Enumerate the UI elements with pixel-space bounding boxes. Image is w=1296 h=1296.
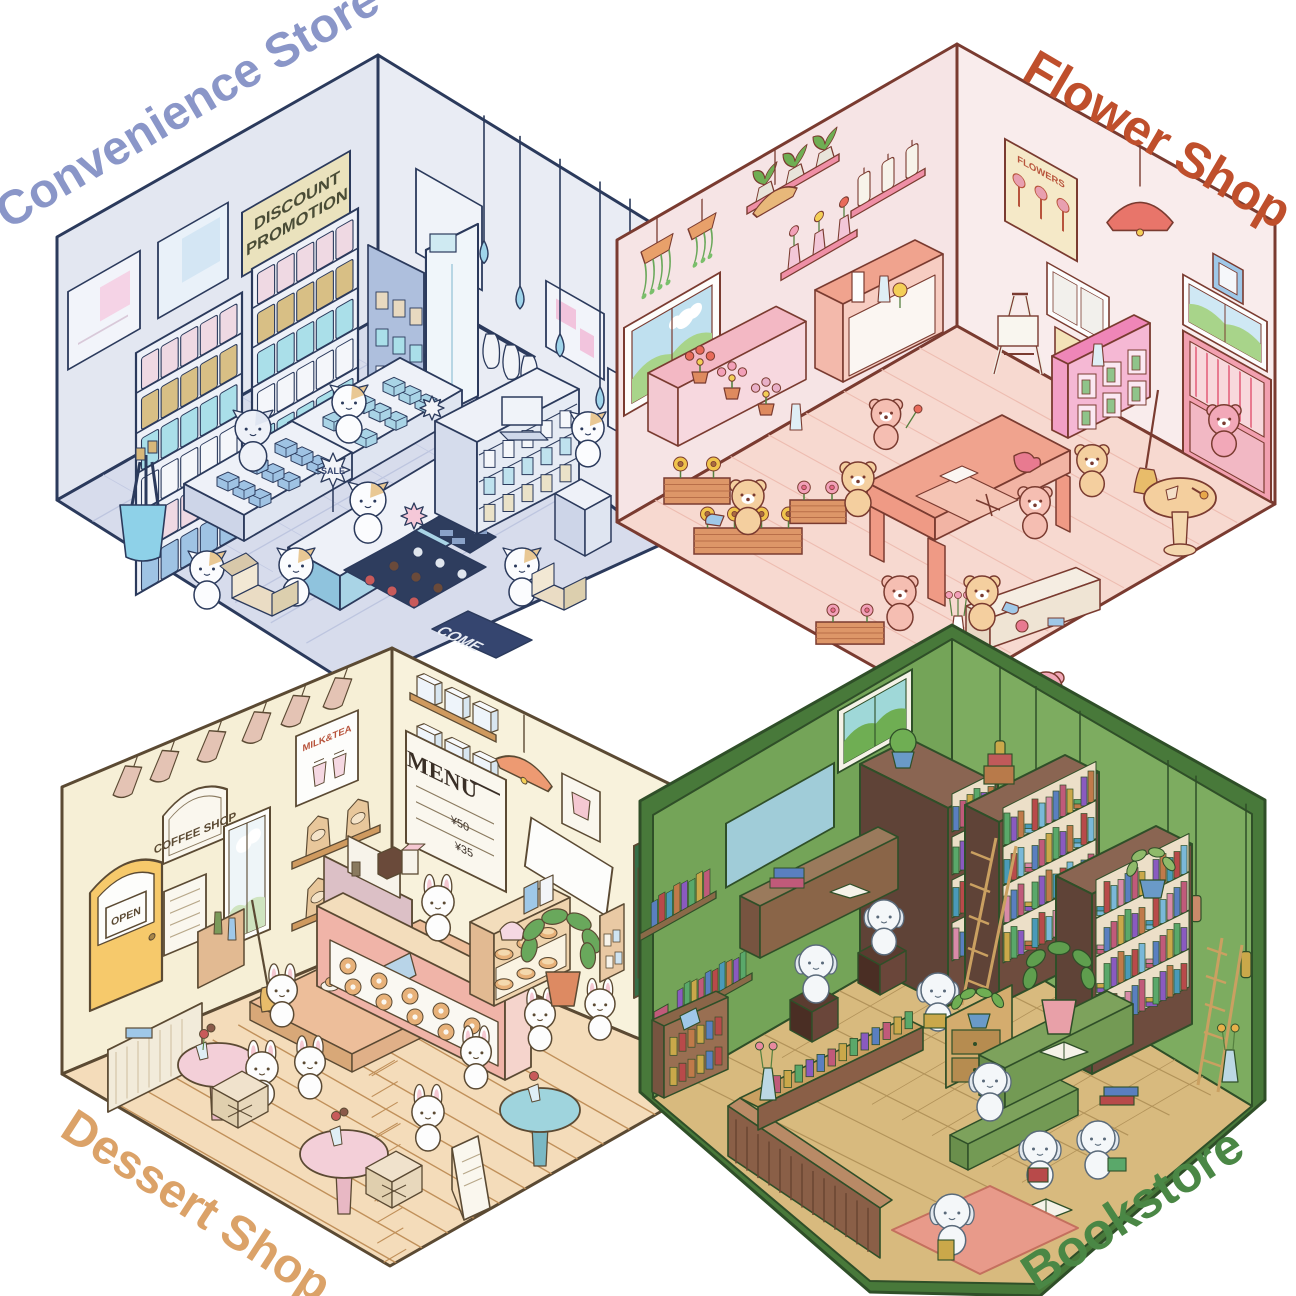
svg-text:SALE: SALE	[321, 466, 345, 476]
